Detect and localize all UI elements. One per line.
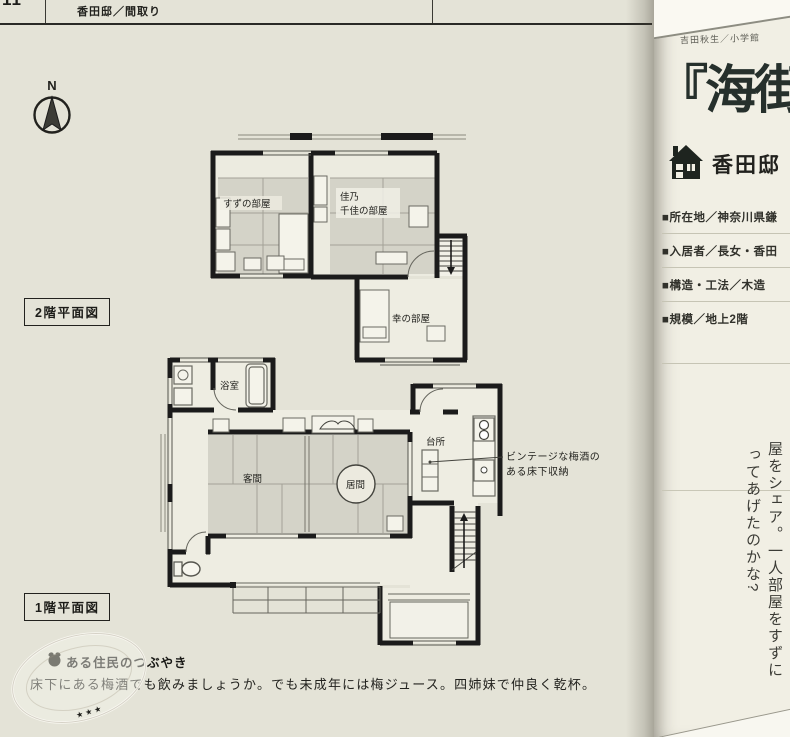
room-label-yoshino-2: 千佳の部屋 [340, 205, 388, 217]
room-label-yoshino-1: 佳乃 [340, 191, 359, 203]
vertical-text: 屋をシェア。一人部屋をすずに ってあげたのかな? [741, 441, 785, 737]
header-rule [0, 23, 652, 25]
tweet-body: 床下にある梅酒でも飲みましょうか。でも未成年には梅ジュース。四姉妹で仲良く乾杯。 [30, 674, 630, 693]
resident-icon [46, 651, 63, 667]
house-name: 香田邸 [712, 149, 781, 179]
vertical-text-col1: 屋をシェア。一人部屋をすずに [763, 441, 785, 737]
house-icon [667, 144, 705, 180]
svg-text:N: N [47, 78, 56, 93]
room-label-guest: 客間 [243, 473, 262, 485]
spec-location: ■所在地／神奈川県鎌 [662, 200, 790, 234]
room-label-bath: 浴室 [220, 380, 239, 392]
room-label-sachi: 幸の部屋 [392, 313, 430, 325]
floor1-plan: 浴室 客間 居間 台所 [158, 356, 503, 648]
room-label-living: 居間 [346, 480, 365, 491]
floor2-plan: すずの部屋 佳乃 千佳の部屋 幸の部屋 [178, 128, 478, 368]
tweet-heading: ある住民のつぶやき [66, 652, 188, 671]
floor1-caption: 1階平面図 [24, 593, 110, 621]
page-gutter-shadow [626, 0, 654, 737]
right-page: 吉田秋生／小学館 『海街 香田邸 ■所在地／神奈川県鎌 ■入居者／長女・香田 ■… [654, 0, 790, 737]
header-divider [432, 0, 433, 23]
header-divider [45, 0, 46, 23]
room-label-kitchen: 台所 [426, 436, 446, 448]
spec-scale: ■規模／地上2階 [662, 302, 790, 364]
spec-residents: ■入居者／長女・香田 [662, 234, 790, 268]
header-title: 香田邸／間取り [77, 3, 161, 19]
plan-annotation: ビンテージな梅酒の ある床下収納 [506, 450, 600, 480]
room-label-suzu: すずの部屋 [223, 198, 271, 210]
vertical-text-col2: ってあげたのかな? [741, 447, 763, 737]
svg-text:★ ★ ★: ★ ★ ★ [75, 704, 102, 720]
compass-north-icon: N [24, 76, 80, 138]
author-credit: 吉田秋生／小学館 [680, 31, 760, 47]
book-title: 『海街 [656, 48, 790, 123]
page-tab-number: 11 [2, 0, 22, 10]
book-spread-photo: 11 香田邸／間取り N [0, 0, 790, 737]
floor2-caption: 2階平面図 [24, 298, 110, 326]
spec-structure: ■構造・工法／木造 [662, 268, 790, 302]
